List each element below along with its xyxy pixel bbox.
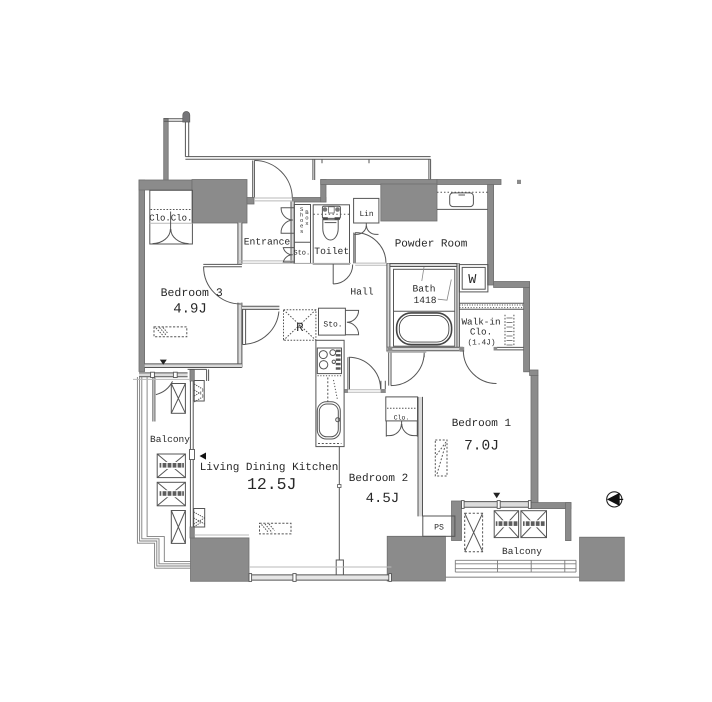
svg-text:4.9J: 4.9J (173, 302, 207, 318)
svg-text:Bedroom 1: Bedroom 1 (452, 418, 512, 430)
svg-text:Clo.Clo.: Clo.Clo. (149, 214, 192, 224)
svg-text:Balcony: Balcony (150, 434, 190, 445)
svg-text:s: s (300, 228, 303, 235)
svg-text:R: R (296, 321, 304, 335)
svg-text:Clo.: Clo. (394, 415, 410, 422)
svg-text:Balcony: Balcony (502, 546, 542, 557)
svg-text:Sto.: Sto. (293, 250, 310, 258)
svg-text:Clo.: Clo. (470, 327, 492, 338)
svg-text:Powder Room: Powder Room (395, 239, 468, 251)
svg-text:Bedroom 2: Bedroom 2 (349, 473, 408, 485)
svg-text:Entrance: Entrance (244, 237, 291, 248)
svg-text:Toilet: Toilet (314, 246, 349, 257)
svg-text:4.5J: 4.5J (366, 491, 400, 507)
svg-text:W: W (468, 273, 477, 288)
svg-text:Lin: Lin (359, 210, 373, 219)
svg-text:12.5J: 12.5J (247, 475, 297, 494)
svg-text:(1.4J): (1.4J) (467, 339, 495, 348)
svg-text:7.0J: 7.0J (464, 438, 499, 454)
svg-text:1418: 1418 (413, 295, 436, 306)
svg-text:Living Dining Kitchen: Living Dining Kitchen (200, 462, 339, 474)
svg-text:PS: PS (434, 524, 444, 533)
svg-text:Sto.: Sto. (323, 321, 342, 330)
svg-text:Bedroom 3: Bedroom 3 (161, 287, 223, 300)
svg-text:Hall: Hall (350, 287, 373, 298)
svg-text:Bath: Bath (412, 284, 435, 295)
